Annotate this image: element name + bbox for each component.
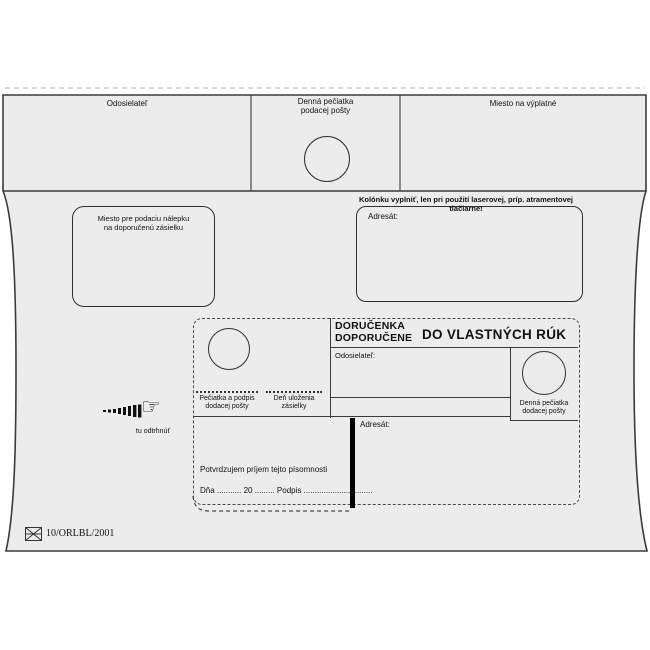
tear-here-label: tu odtrhnúť (118, 428, 188, 436)
addressee-box: Adresát: (356, 206, 583, 302)
delivery-daily-stamp-line2: dodacej pošty (508, 408, 580, 416)
card-title-right: DO VLASTNÝCH RÚK (422, 327, 566, 342)
storage-day-label: Deň uloženia zásielky (263, 395, 325, 411)
stamp-signature-label-line1: Pečiatka a podpis (190, 395, 264, 403)
registered-label-line1: Miesto pre podaciu nálepku (73, 214, 214, 223)
stamp-signature-dotted-rule (196, 391, 258, 393)
stamp-signature-label-line2: dodacej pošty (190, 403, 264, 411)
posting-stamp-circle (304, 136, 350, 182)
storage-day-label-line1: Deň uloženia (263, 395, 325, 403)
form-code: 10/ORLBL/2001 (46, 528, 114, 539)
delivery-daily-stamp-line1: Denná pečiatka (508, 400, 580, 408)
card-left-divider (330, 318, 331, 418)
delivery-daily-stamp-circle (522, 351, 566, 395)
delivery-office-stamp-circle (208, 328, 250, 370)
posting-stamp-label-line2: podacej pošty (251, 106, 400, 115)
card-title: DORUČENKA DOPORUČENE (335, 320, 412, 344)
stamp-signature-label: Pečiatka a podpis dodacej pošty (190, 395, 264, 411)
posting-stamp-label: Denná pečiatka podacej pošty (251, 97, 400, 115)
printer-note: Kolónku vyplniť, len pri použití laserov… (346, 195, 586, 213)
card-addressee-label: Adresát: (360, 420, 390, 429)
postage-field-label: Miesto na výplatné (400, 99, 646, 108)
envelope-scan: Odosielateľ Denná pečiatka podacej pošty… (0, 0, 650, 650)
storage-day-dotted-rule (266, 391, 322, 393)
delivery-daily-stamp-label: Denná pečiatka dodacej pošty (508, 400, 580, 416)
confirmation-text: Potvrdzujem príjem tejto písomnosti (200, 465, 327, 474)
card-title-line2: DOPORUČENE (335, 332, 412, 344)
pointing-hand-icon: ☞ (141, 396, 161, 418)
registered-label-box: Miesto pre podaciu nálepku na doporučenú… (72, 206, 215, 307)
storage-day-label-line2: zásielky (263, 403, 325, 411)
date-signature-line: Dňa ........... 20 ......... Podpis ....… (200, 486, 373, 495)
posting-stamp-label-line1: Denná pečiatka (251, 97, 400, 106)
card-sender-rule (330, 397, 510, 398)
card-right-column-bottom-rule (510, 420, 578, 421)
sender-field-label: Odosielateľ (3, 99, 251, 108)
card-title-underline (330, 347, 578, 348)
registered-label-line2: na doporučenú zásielku (73, 223, 214, 232)
card-sender-label: Odosielateľ: (335, 351, 375, 360)
card-title-line1: DORUČENKA (335, 320, 412, 332)
